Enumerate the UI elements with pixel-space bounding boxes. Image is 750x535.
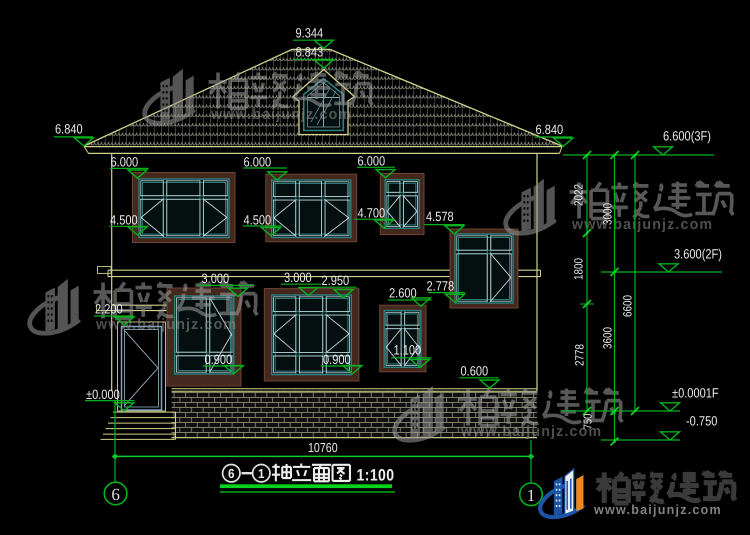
svg-text:±0.000: ±0.000 (86, 387, 120, 402)
svg-text:2.778: 2.778 (427, 279, 455, 294)
svg-text:±0.0001F: ±0.0001F (672, 386, 719, 401)
svg-text:4.500: 4.500 (110, 212, 138, 227)
svg-text:www.baijunjz.com: www.baijunjz.com (593, 502, 722, 517)
svg-text:0.600: 0.600 (461, 364, 489, 379)
svg-text:3.000: 3.000 (202, 271, 230, 286)
svg-text:4.700: 4.700 (358, 206, 386, 221)
svg-text:10760: 10760 (308, 440, 338, 455)
svg-text:3600: 3600 (601, 327, 615, 349)
svg-text:1: 1 (258, 466, 265, 481)
svg-text:www.baijunjz.com: www.baijunjz.com (571, 216, 713, 233)
svg-text:6.840: 6.840 (536, 122, 564, 137)
svg-text:1: 1 (527, 486, 536, 505)
svg-text:2.200: 2.200 (95, 301, 123, 316)
svg-text:2778: 2778 (573, 344, 587, 366)
svg-text:6: 6 (228, 466, 235, 481)
svg-text:6.600(3F): 6.600(3F) (663, 129, 711, 144)
svg-text:750: 750 (583, 414, 595, 430)
svg-text:1:100: 1:100 (357, 467, 395, 485)
svg-text:www.baijunjz.com: www.baijunjz.com (210, 106, 352, 123)
svg-text:4.578: 4.578 (426, 209, 454, 224)
svg-text:9.344: 9.344 (296, 26, 324, 41)
svg-text:6.840: 6.840 (55, 122, 83, 137)
svg-text:2.950: 2.950 (322, 273, 350, 288)
svg-text:6.000: 6.000 (358, 154, 386, 169)
svg-text:6600: 6600 (621, 295, 635, 317)
svg-text:3.000: 3.000 (284, 270, 312, 285)
svg-text:3.600(2F): 3.600(2F) (674, 247, 722, 262)
svg-text:www.baijunjz.com: www.baijunjz.com (460, 423, 602, 440)
svg-text:4.500: 4.500 (244, 212, 272, 227)
svg-text:2022: 2022 (572, 184, 586, 206)
svg-text:8.843: 8.843 (296, 45, 324, 60)
svg-text:-0.750: -0.750 (686, 414, 717, 429)
svg-text:1.100: 1.100 (394, 343, 422, 358)
svg-text:1800: 1800 (572, 258, 586, 280)
svg-text:6.000: 6.000 (244, 154, 272, 169)
svg-text:6.000: 6.000 (111, 154, 139, 169)
svg-text:3000: 3000 (601, 203, 615, 225)
svg-text:6: 6 (111, 485, 120, 504)
